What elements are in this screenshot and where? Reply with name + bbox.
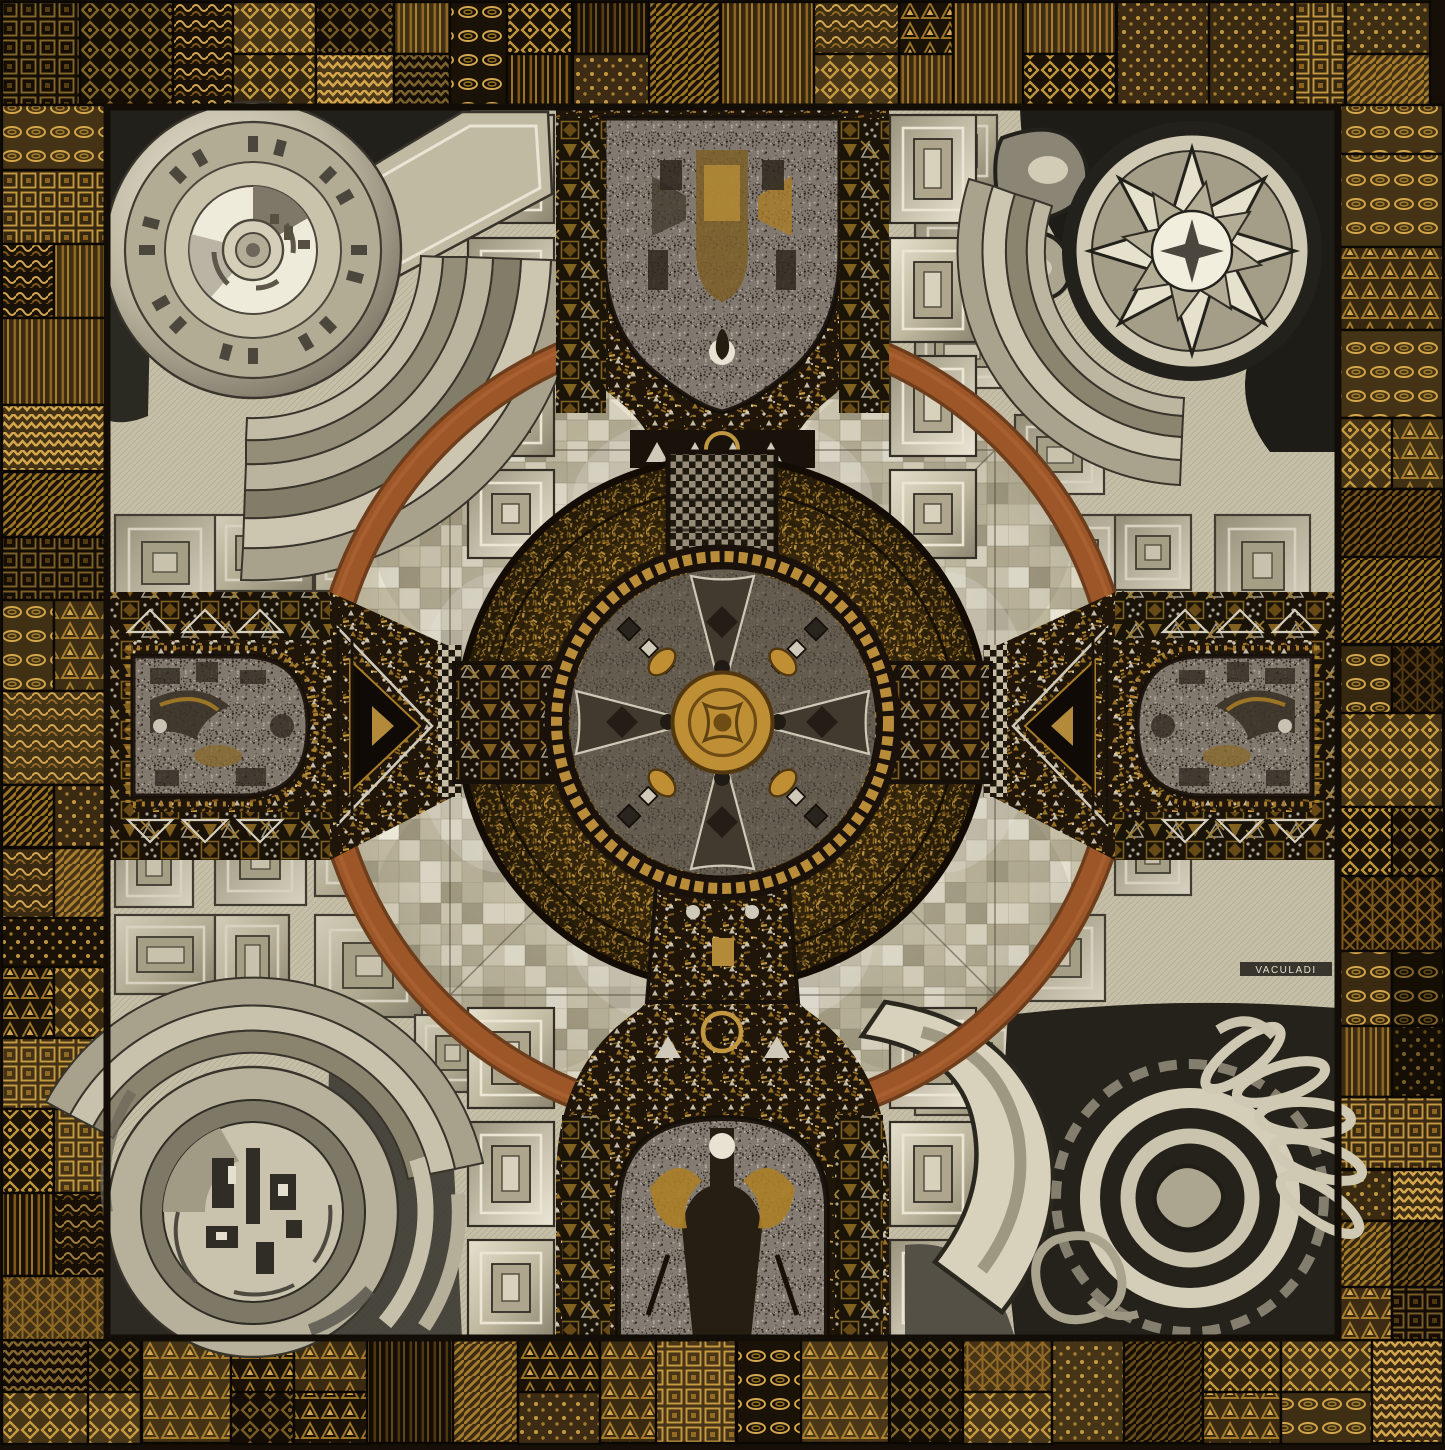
svg-text:VACULADI: VACULADI [1255,965,1316,976]
